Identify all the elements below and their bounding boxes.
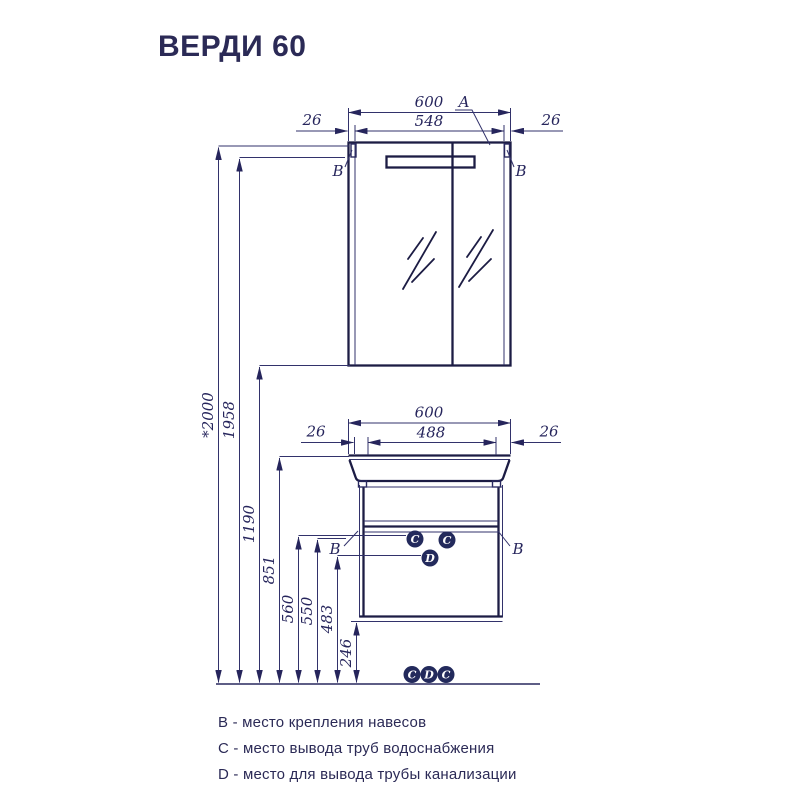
- svg-text:C: C: [443, 534, 452, 547]
- dim-height-mirror-top: 1958: [220, 401, 238, 439]
- svg-text:C: C: [411, 533, 420, 546]
- vanity-dimensions: 600 488 26 26: [301, 404, 561, 456]
- vanity-cabinet-drawing: B B C C D: [328, 485, 523, 622]
- svg-text:C: C: [408, 669, 417, 682]
- marker-a-label: A: [457, 93, 470, 111]
- mirror-shine-right-door: [459, 230, 493, 287]
- dim-height-hanger: 550: [298, 596, 316, 625]
- washbasin-drawing: [349, 456, 511, 488]
- mirror-shine-left-door: [403, 232, 436, 289]
- dim-height-water-supply: 560: [279, 594, 297, 623]
- technical-drawing-page: ВЕРДИ 60: [0, 0, 800, 800]
- dim-vanity-offset-right: 26: [538, 423, 559, 441]
- dim-mirror-width-total: 600: [415, 93, 444, 111]
- dim-height-basin-top: 851: [260, 556, 278, 585]
- dim-height-cabinet-bottom: 246: [337, 638, 355, 668]
- vanity-b-left-leader: [344, 531, 358, 546]
- dim-height-mirror-bottom: 1190: [240, 504, 258, 543]
- mirror-cabinet-drawing: [349, 143, 511, 366]
- dim-mirror-offset-right: 26: [540, 111, 561, 129]
- dim-height-overall: *2000: [199, 392, 217, 438]
- dim-height-drain: 483: [318, 605, 336, 635]
- svg-text:C: C: [442, 669, 451, 682]
- marker-a-leader: [455, 110, 490, 145]
- vanity-b-right-leader: [498, 531, 510, 546]
- legend-item-water-supply: C - место вывода труб водоснабжения: [218, 736, 517, 762]
- svg-text:D: D: [424, 552, 435, 565]
- installation-drawing: 600 548 26 26 A B B: [0, 0, 800, 800]
- dim-mirror-offset-left: 26: [301, 111, 322, 129]
- vanity-b-right-label: B: [511, 540, 523, 558]
- dim-vanity-offset-left: 26: [305, 423, 326, 441]
- mirror-cabinet-outline: [349, 143, 511, 366]
- floor: C D C: [216, 666, 540, 684]
- marker-b-right-label: B: [514, 162, 526, 180]
- height-dimensions: *2000 1958 1190 851 560 550 483 246: [199, 146, 421, 683]
- legend-item-drain: D - место для вывода трубы канализации: [218, 762, 517, 788]
- basin-body: [350, 460, 510, 481]
- mirror-light-fixture: [387, 157, 475, 168]
- legend: B - место крепления навесов C - место вы…: [218, 710, 517, 788]
- svg-text:D: D: [423, 669, 434, 682]
- dim-vanity-width-inner: 488: [416, 424, 446, 442]
- dim-vanity-width-total: 600: [415, 404, 444, 422]
- legend-item-hanger-mounting: B - место крепления навесов: [218, 710, 517, 736]
- dim-mirror-width-inner: 548: [415, 112, 444, 130]
- marker-b-left-label: B: [331, 162, 343, 180]
